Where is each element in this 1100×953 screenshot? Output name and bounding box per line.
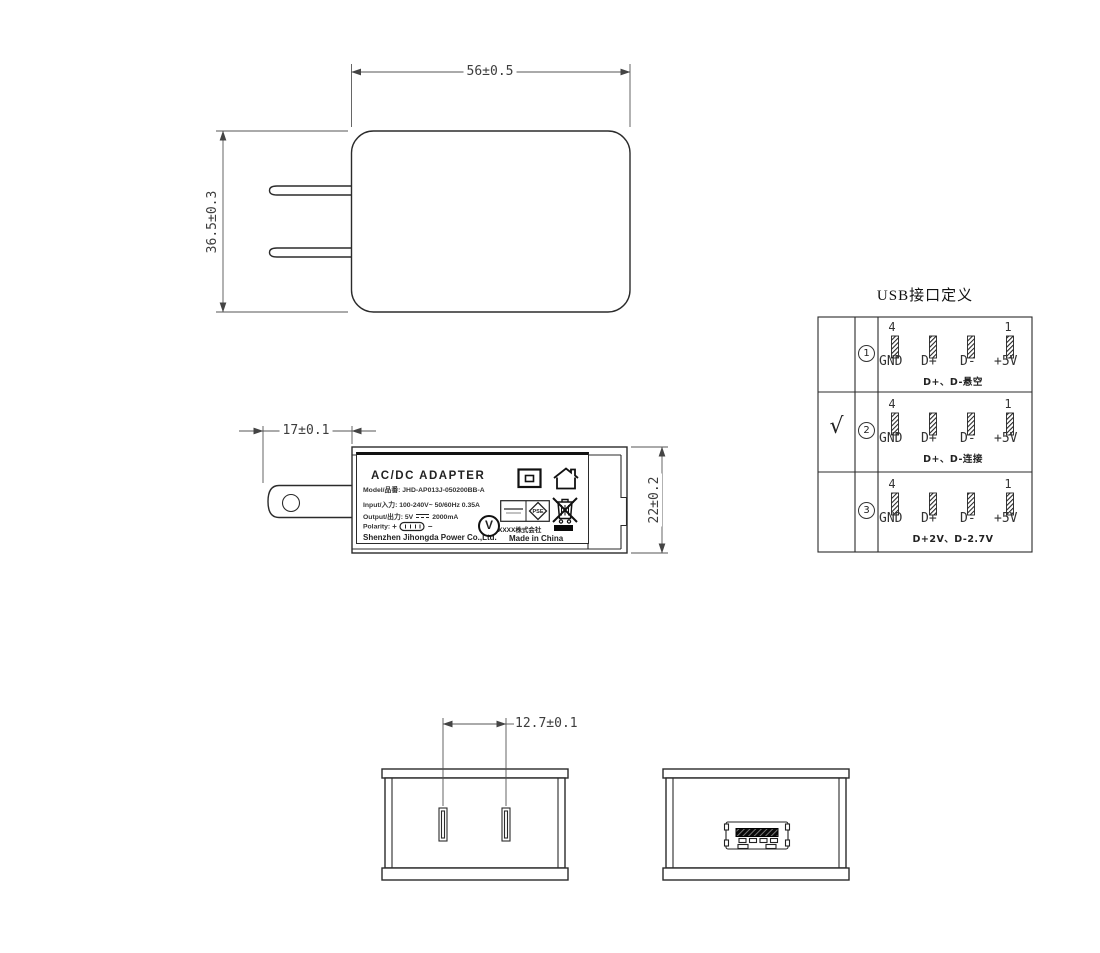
pin-number-1: 1 — [1002, 320, 1014, 334]
top-view — [270, 131, 631, 312]
drawing-canvas: .obj{fill:#ffffff;stroke:#2b2b2b;stroke-… — [0, 0, 1100, 953]
output-suffix: 2000mA — [432, 514, 458, 521]
pin-label-5v: +5V — [994, 511, 1017, 526]
usb-connector-icon — [399, 521, 426, 532]
row-number-badge: 1 — [855, 341, 878, 362]
class-ii-icon — [517, 468, 542, 489]
polarity-label: Polarity: — [363, 523, 390, 530]
usb-table-row-2: √ 2 4 1 GND D+ D- +5V D+、D-连接 — [818, 394, 1032, 472]
pin-number-4: 4 — [886, 320, 898, 334]
row-selected-mark: √ — [818, 414, 855, 439]
usb-port-icon — [725, 822, 790, 849]
label-input-line: Input/入力: 100-240V~ 50/60Hz 0.35A — [363, 499, 480, 509]
dim-pin-length: 17±0.1 — [280, 424, 333, 438]
usb-table-row-1: 1 4 1 GND D+ D- +5V D+、D-悬空 — [818, 317, 1032, 395]
pin-number-1: 1 — [1002, 397, 1014, 411]
weee-bar-icon — [554, 525, 573, 531]
pin-label-dplus: D+ — [921, 511, 937, 526]
top-view-prong-upper — [270, 186, 352, 195]
dc-symbol-icon — [416, 514, 429, 520]
row-number-badge: 3 — [855, 498, 878, 519]
row-note: D+2V、D-2.7V — [878, 531, 1028, 545]
pin-label-dplus: D+ — [921, 354, 937, 369]
product-label: AC/DC ADAPTER Model/品番: JHD-AP013J-05020… — [356, 452, 589, 544]
pin-number-1: 1 — [1002, 477, 1014, 491]
dim-body-depth: 22±0.2 — [648, 474, 662, 527]
top-view-body — [352, 131, 631, 312]
pin-label-gnd: GND — [879, 511, 902, 526]
row-note: D+、D-悬空 — [878, 374, 1028, 388]
dim-body-height: 36.5±0.3 — [206, 188, 220, 257]
pin-number-4: 4 — [886, 397, 898, 411]
polarity-plus: + — [392, 522, 397, 531]
row-note: D+、D-连接 — [878, 451, 1028, 465]
pin-label-5v: +5V — [994, 431, 1017, 446]
indoor-use-icon — [552, 467, 580, 490]
pin-number-4: 4 — [886, 477, 898, 491]
label-maker: XXXX株式会社 — [498, 524, 541, 534]
label-model-line: Model/品番: JHD-AP013J-050200BB-A — [363, 484, 485, 494]
usb-face-view — [663, 769, 849, 880]
output-prefix: Output/出力: 5V — [363, 514, 413, 521]
pin-label-dminus: D- — [960, 354, 976, 369]
label-output-line: Output/出力: 5V2000mA — [363, 511, 458, 521]
pin-label-dplus: D+ — [921, 431, 937, 446]
pse-mark-icon: PSE — [500, 500, 550, 522]
polarity-minus: − — [428, 522, 433, 531]
row-number-badge: 2 — [855, 418, 878, 439]
label-title: AC/DC ADAPTER — [371, 470, 485, 482]
top-view-prong-lower — [270, 248, 352, 257]
pin-label-5v: +5V — [994, 354, 1017, 369]
v-mark-icon: V — [478, 515, 500, 537]
pin-label-dminus: D- — [960, 431, 976, 446]
pin-label-gnd: GND — [879, 431, 902, 446]
pin-label-dminus: D- — [960, 511, 976, 526]
label-company: Shenzhen Jihongda Power Co.,Ltd. — [363, 533, 497, 542]
dim-height-lines — [216, 131, 348, 312]
label-polarity-line: Polarity: +− — [363, 521, 432, 532]
side-view-prong — [268, 486, 352, 518]
pse-text: PSE — [532, 509, 543, 515]
label-made-in: Made in China — [509, 534, 563, 543]
usb-table-row-3: 3 4 1 GND D+ D- +5V D+2V、D-2.7V — [818, 474, 1032, 552]
pin-label-gnd: GND — [879, 354, 902, 369]
plug-face-view — [382, 769, 568, 880]
weee-bin-icon — [552, 495, 578, 525]
usb-tongue — [736, 829, 778, 837]
usb-table-title: USB接口定义 — [818, 284, 1032, 305]
dim-prong-pitch: 12.7±0.1 — [514, 717, 579, 731]
dim-body-width: 56±0.5 — [464, 65, 517, 79]
